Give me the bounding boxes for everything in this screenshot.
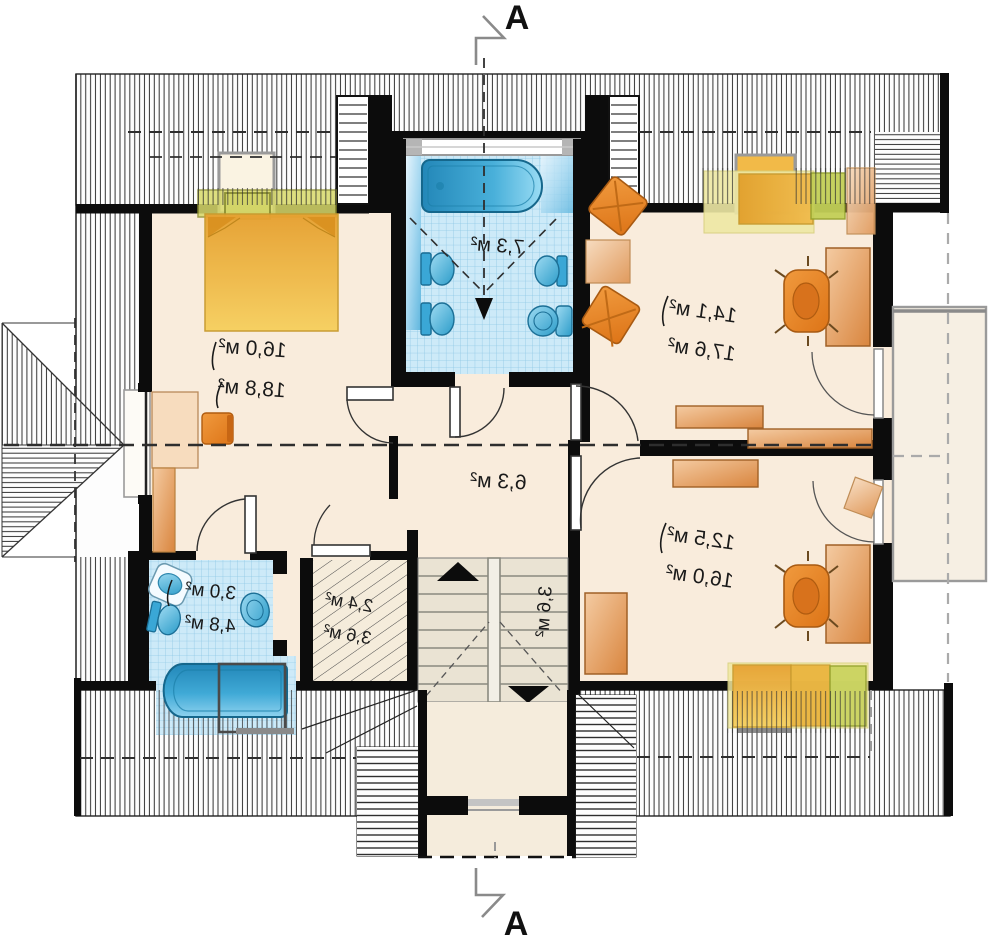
svg-text:A: A xyxy=(504,905,529,935)
svg-text:6,3 м²: 6,3 м² xyxy=(470,469,528,495)
svg-text:16,0 м²: 16,0 м² xyxy=(218,335,288,363)
svg-text:18,8 м²: 18,8 м² xyxy=(217,375,287,403)
svg-text:7,3 м²: 7,3 м² xyxy=(469,233,525,259)
svg-text:3,6 м²: 3,6 м² xyxy=(532,585,557,637)
svg-text:A: A xyxy=(505,0,530,37)
